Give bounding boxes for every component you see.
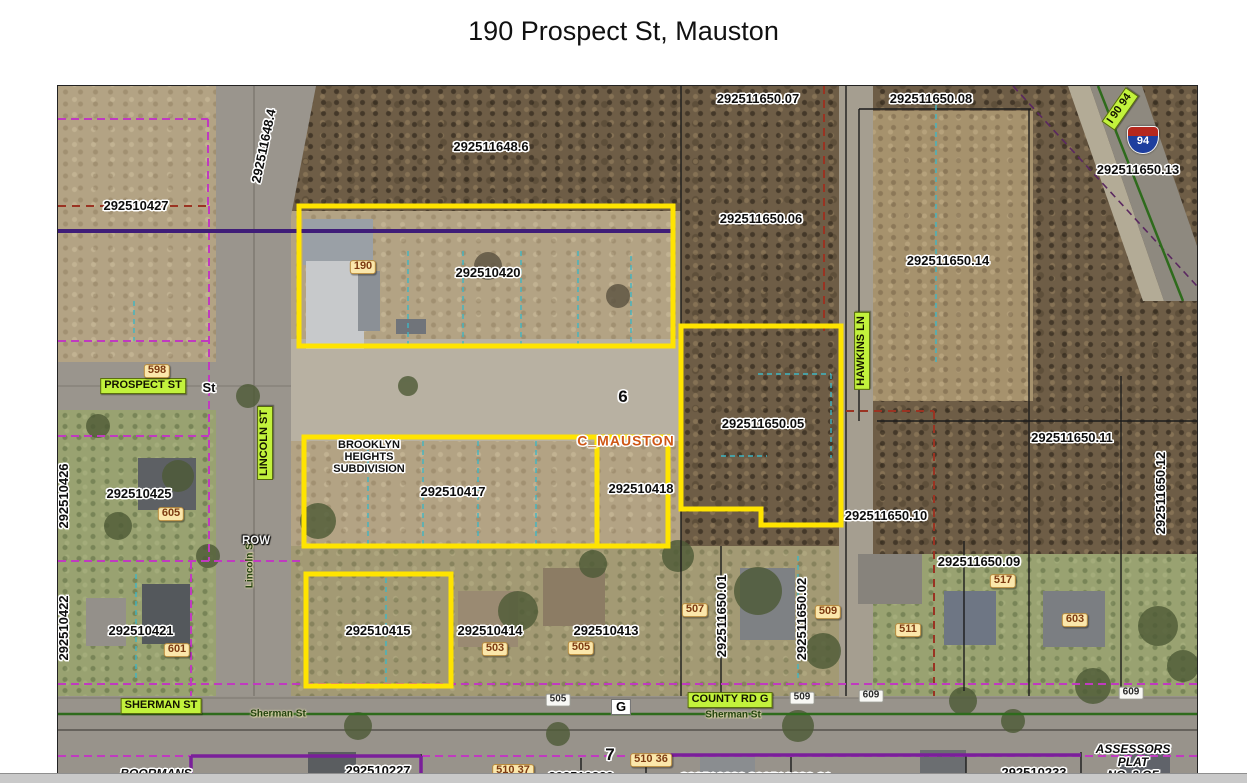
address-number-label: 517 — [990, 574, 1016, 588]
street-name-label: COUNTY RD G — [688, 692, 773, 708]
street-name-label: HAWKINS LN — [854, 312, 870, 390]
street-name-label: I 90 94 — [1102, 87, 1139, 130]
on-road-street-name: Sherman St — [250, 710, 306, 721]
section-number-label: 7 — [605, 746, 614, 764]
parcel-id-label: 292511650.10 — [845, 509, 927, 523]
page-title: 190 Prospect St, Mauston — [468, 16, 779, 47]
street-name-label: LINCOLN ST — [257, 406, 273, 480]
parcel-id-label: 292510420 — [455, 266, 520, 280]
street-name-label: PROSPECT ST — [100, 378, 186, 394]
address-number-label: 503 — [482, 642, 508, 656]
parcel-id-label: 292510421 — [108, 624, 173, 638]
parcel-id-label: 292510425 — [106, 487, 171, 501]
county-road-marker: G — [611, 699, 631, 715]
street-name-label: SHERMAN ST — [121, 698, 202, 714]
address-number-label: 507 — [682, 603, 708, 617]
parcel-id-label: 292510415 — [345, 624, 410, 638]
on-road-street-name: Sherman St — [705, 711, 761, 722]
parcel-id-label: 292511650.05 — [722, 417, 804, 431]
parcel-id-label: 292511650.06 — [720, 212, 802, 226]
municipality-label: C_MAUSTON — [577, 433, 674, 448]
parcel-id-label: 292510414 — [457, 624, 522, 638]
parcel-id-label: 292511648.4 — [249, 108, 278, 184]
parcel-id-label: 292511650.07 — [717, 92, 799, 106]
parcel-id-label: 292510422 — [57, 595, 71, 660]
address-number-label: 509 — [815, 605, 841, 619]
parcel-id-label: 292511650.02 — [795, 578, 809, 660]
parcel-id-label: 292510418 — [608, 482, 673, 496]
address-number-label: 605 — [158, 507, 184, 521]
parcel-id-label: 292511650.01 — [715, 575, 729, 657]
road-address-tag: 609 — [1119, 687, 1144, 700]
right-of-way-label: ROW — [242, 535, 270, 547]
plat-name-label: ASSESSORS PLAT NO. 3 OF CITY — [1096, 743, 1171, 776]
address-number-label: 511 — [895, 623, 921, 637]
parcel-id-label: 292511650.12 — [1154, 452, 1168, 534]
address-number-label: 603 — [1062, 613, 1088, 627]
subdivision-name-label: BROOKLYN HEIGHTS SUBDIVISION — [333, 440, 405, 476]
address-number-label: 510 36 — [630, 753, 672, 767]
parcel-id-label: 292511650.14 — [907, 254, 989, 268]
parcel-id-label: 292511650.08 — [890, 92, 972, 106]
interstate-94-number: 94 — [1128, 136, 1158, 147]
road-address-tag: 505 — [546, 694, 571, 707]
address-number-label: 505 — [568, 641, 594, 655]
parcel-id-label: 292511650.11 — [1031, 431, 1113, 445]
road-address-tag: 609 — [859, 690, 884, 703]
address-number-label: 598 — [144, 364, 170, 378]
road-address-tag: 509 — [790, 692, 815, 705]
parcel-map-image: 292511648.4292510427292511648.6292510420… — [57, 85, 1198, 776]
parcel-id-label: 292510413 — [573, 624, 638, 638]
address-number-label: 190 — [350, 260, 376, 274]
parcel-id-label: 292510427 — [103, 199, 168, 213]
parcel-id-label: 292511650.13 — [1097, 163, 1179, 177]
address-number-label: 601 — [164, 643, 190, 657]
parcel-id-label: 292511650.09 — [938, 555, 1020, 569]
parcel-id-label: 292510417 — [420, 485, 485, 499]
map-labels-layer: 292511648.4292510427292511648.6292510420… — [58, 86, 1197, 775]
parcel-id-label: St — [203, 381, 216, 395]
parcel-id-label: 292510426 — [57, 463, 71, 528]
parcel-id-label: 292511648.6 — [453, 140, 528, 154]
section-number-label: 6 — [618, 388, 627, 406]
